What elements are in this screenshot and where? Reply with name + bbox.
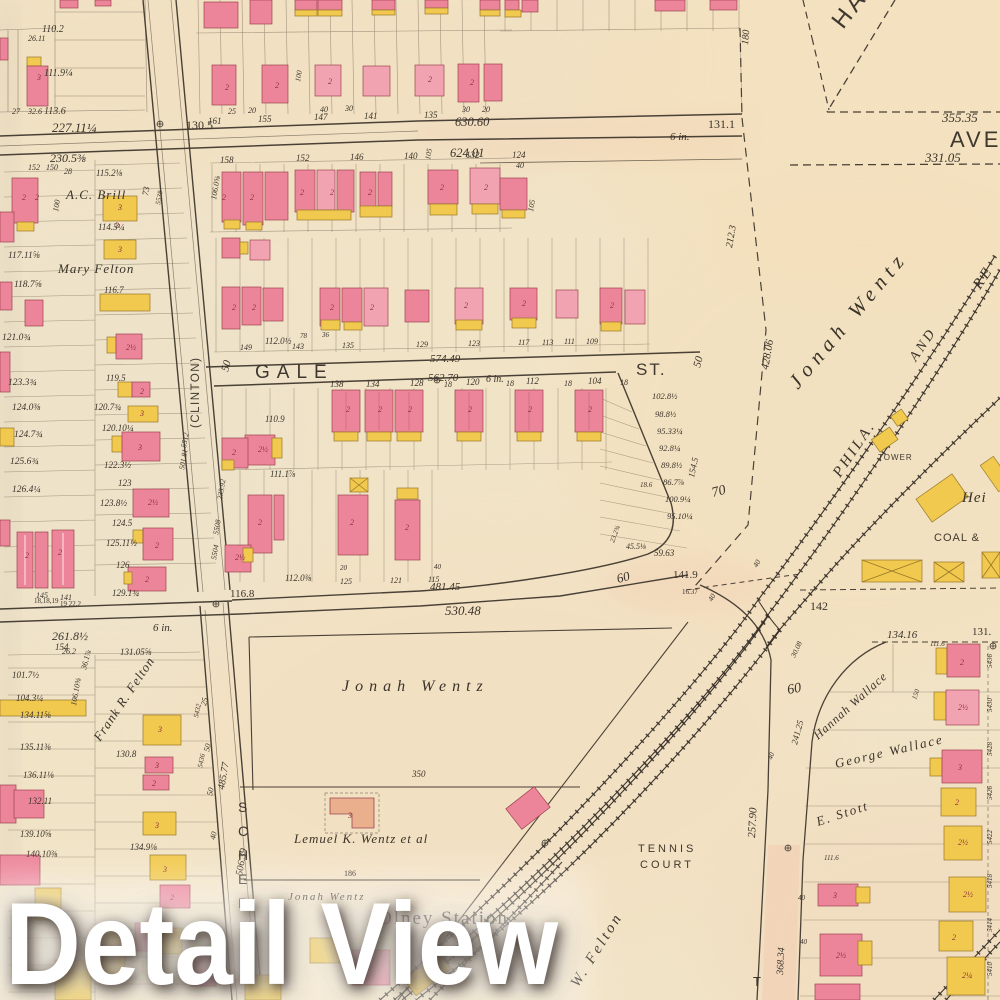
svg-text:123: 123: [118, 478, 132, 488]
svg-text:27: 27: [12, 107, 21, 116]
svg-text:5414: 5414: [986, 918, 994, 933]
svg-text:118.7⅝: 118.7⅝: [14, 280, 42, 290]
svg-text:101.7½: 101.7½: [12, 670, 39, 680]
svg-text:3: 3: [117, 245, 122, 254]
svg-text:18: 18: [564, 379, 572, 388]
svg-text:138: 138: [330, 379, 344, 389]
svg-text:3: 3: [154, 821, 159, 830]
svg-text:26.11: 26.11: [28, 34, 45, 43]
svg-text:2½: 2½: [958, 703, 968, 712]
svg-text:124.0⅜: 124.0⅜: [12, 403, 41, 413]
svg-text:(CLINTON): (CLINTON): [190, 357, 202, 428]
svg-text:T: T: [753, 974, 761, 989]
svg-text:125.11½: 125.11½: [106, 538, 137, 548]
svg-text:30: 30: [461, 105, 470, 114]
svg-text:3: 3: [154, 761, 159, 770]
svg-text:2: 2: [440, 183, 444, 192]
svg-text:16.37: 16.37: [682, 588, 698, 596]
svg-text:126: 126: [116, 560, 130, 570]
svg-text:40: 40: [800, 938, 808, 946]
svg-text:123.8½: 123.8½: [100, 498, 127, 508]
svg-text:2: 2: [155, 541, 159, 550]
svg-text:134.9⅛: 134.9⅛: [130, 842, 157, 852]
svg-text:18: 18: [506, 379, 514, 388]
svg-text:20: 20: [248, 106, 256, 115]
svg-text:59.63: 59.63: [654, 548, 675, 558]
svg-text:2: 2: [370, 303, 374, 312]
svg-text:120.10¼: 120.10¼: [102, 423, 134, 433]
svg-text:2: 2: [528, 405, 532, 414]
svg-text:2¼: 2¼: [962, 971, 972, 980]
svg-text:C: C: [238, 823, 248, 839]
svg-text:COAL &: COAL &: [934, 532, 980, 544]
svg-text:152: 152: [28, 163, 40, 172]
svg-text:149: 149: [240, 343, 252, 352]
svg-text:129: 129: [416, 340, 428, 349]
svg-text:123: 123: [468, 339, 480, 348]
svg-text:142: 142: [810, 599, 828, 613]
svg-text:2: 2: [275, 81, 279, 90]
svg-text:124.7¾: 124.7¾: [14, 429, 43, 440]
svg-text:S: S: [238, 799, 247, 815]
svg-text:141: 141: [60, 593, 72, 602]
svg-text:2½: 2½: [258, 445, 268, 454]
svg-text:3: 3: [114, 221, 119, 230]
svg-text:134: 134: [366, 379, 380, 389]
svg-text:2: 2: [952, 933, 956, 942]
svg-text:Detail View: Detail View: [5, 878, 559, 1000]
svg-text:5422: 5422: [986, 830, 994, 845]
svg-text:Hei: Hei: [961, 490, 987, 506]
svg-text:2: 2: [960, 658, 964, 667]
svg-text:2: 2: [428, 75, 432, 84]
svg-text:2½: 2½: [148, 498, 158, 507]
svg-text:2: 2: [232, 448, 236, 457]
svg-text:A.C. Brill: A.C. Brill: [65, 187, 126, 202]
svg-text:112.0½: 112.0½: [265, 336, 292, 346]
svg-text:60: 60: [786, 681, 802, 698]
svg-text:161: 161: [208, 116, 222, 126]
svg-text:2: 2: [484, 183, 488, 192]
svg-text:40: 40: [434, 563, 442, 571]
svg-text:18: 18: [444, 380, 452, 389]
svg-text:28: 28: [64, 167, 72, 176]
svg-text:89.8½: 89.8½: [661, 460, 683, 470]
svg-text:120.7¾: 120.7¾: [94, 402, 121, 412]
svg-text:2: 2: [25, 551, 29, 560]
svg-text:3: 3: [36, 73, 41, 82]
svg-text:Jonah Wentz: Jonah Wentz: [342, 678, 489, 695]
svg-text:3: 3: [832, 891, 837, 900]
svg-text:3: 3: [347, 811, 352, 820]
svg-text:45.5⅛: 45.5⅛: [626, 542, 646, 551]
svg-text:2: 2: [408, 405, 412, 414]
svg-text:355.35: 355.35: [941, 110, 978, 125]
svg-text:2: 2: [610, 301, 614, 310]
svg-text:2½: 2½: [836, 951, 846, 960]
svg-text:2: 2: [140, 387, 144, 396]
svg-text:141: 141: [364, 111, 378, 121]
svg-text:6 in.: 6 in.: [670, 131, 690, 143]
svg-text:2: 2: [522, 299, 526, 308]
svg-text:132: 132: [466, 150, 480, 160]
svg-text:6 in.: 6 in.: [486, 374, 504, 385]
svg-text:124: 124: [512, 150, 526, 160]
svg-text:2: 2: [222, 193, 226, 202]
svg-text:104.3¼: 104.3¼: [16, 693, 43, 703]
svg-text:Mary Felton: Mary Felton: [57, 261, 134, 276]
svg-text:2: 2: [152, 779, 156, 788]
svg-text:2: 2: [468, 405, 472, 414]
svg-text:TOWER: TOWER: [878, 453, 913, 462]
svg-text:2: 2: [330, 188, 334, 197]
svg-text:25: 25: [228, 107, 236, 116]
svg-text:2½: 2½: [235, 553, 245, 562]
svg-text:112.0⅜: 112.0⅜: [285, 573, 312, 583]
svg-text:86.7⅞: 86.7⅞: [663, 477, 684, 487]
svg-text:3: 3: [137, 443, 142, 452]
svg-text:2: 2: [350, 518, 354, 527]
svg-text:2: 2: [470, 78, 474, 87]
svg-text:5410: 5410: [986, 962, 994, 977]
svg-text:112: 112: [526, 376, 539, 386]
svg-text:78: 78: [300, 332, 308, 340]
svg-text:116.8: 116.8: [230, 588, 255, 600]
svg-text:180: 180: [740, 29, 752, 45]
svg-text:123.3¾: 123.3¾: [8, 377, 37, 388]
svg-text:135: 135: [424, 110, 438, 120]
svg-text:140: 140: [404, 151, 418, 161]
svg-text:26.2: 26.2: [62, 647, 76, 656]
svg-text:140.10⅜: 140.10⅜: [26, 849, 58, 859]
svg-text:5426: 5426: [986, 786, 994, 801]
svg-text:2: 2: [368, 188, 372, 197]
svg-text:125.6¾: 125.6¾: [10, 456, 39, 467]
svg-text:110.9: 110.9: [265, 414, 285, 424]
svg-text:95.10¼: 95.10¼: [667, 511, 693, 521]
svg-text:126.4¼: 126.4¼: [12, 484, 41, 495]
svg-text:113: 113: [542, 338, 553, 347]
svg-text:124.5: 124.5: [112, 518, 133, 528]
svg-text:102.8½: 102.8½: [652, 391, 678, 401]
svg-text:115.2⅛: 115.2⅛: [96, 168, 123, 178]
svg-text:130.8: 130.8: [116, 749, 137, 759]
svg-text:115: 115: [428, 575, 439, 584]
svg-text:2: 2: [346, 405, 350, 414]
svg-text:139.10⅝: 139.10⅝: [20, 829, 52, 839]
svg-text:2: 2: [252, 303, 256, 312]
svg-text:150: 150: [46, 163, 58, 172]
svg-text:120: 120: [466, 377, 480, 387]
svg-text:257.90: 257.90: [746, 807, 760, 838]
svg-text:3: 3: [157, 725, 162, 734]
svg-text:2: 2: [232, 303, 236, 312]
svg-text:2: 2: [955, 798, 959, 807]
svg-text:145: 145: [36, 591, 48, 600]
svg-text:100.9¼: 100.9¼: [665, 494, 691, 504]
svg-text:ST.: ST.: [636, 360, 667, 379]
svg-text:3: 3: [957, 763, 962, 772]
svg-text:5436: 5436: [986, 654, 994, 669]
svg-text:98.8½: 98.8½: [655, 409, 677, 419]
svg-text:2½: 2½: [958, 838, 968, 847]
svg-text:158: 158: [220, 155, 234, 165]
svg-text:2: 2: [405, 523, 409, 532]
svg-text:630.60: 630.60: [455, 115, 490, 129]
svg-text:574.49: 574.49: [430, 353, 461, 365]
svg-text:92.8¼: 92.8¼: [659, 443, 681, 453]
svg-text:121: 121: [390, 576, 402, 585]
svg-text:117: 117: [518, 338, 530, 347]
svg-text:119.5: 119.5: [106, 373, 126, 383]
svg-text:18.6: 18.6: [640, 481, 653, 489]
svg-text:121.0¾: 121.0¾: [2, 332, 31, 343]
svg-text:114.5¼: 114.5¼: [98, 222, 125, 232]
svg-text:131.: 131.: [972, 626, 992, 638]
svg-text:116.7: 116.7: [104, 285, 124, 295]
svg-text:2½: 2½: [963, 890, 973, 899]
svg-text:2: 2: [378, 405, 382, 414]
svg-text:227.11¼: 227.11¼: [52, 120, 97, 135]
svg-text:122.3½: 122.3½: [104, 460, 131, 470]
svg-text:5418: 5418: [986, 874, 994, 889]
svg-text:AVE: AVE: [950, 127, 1000, 152]
svg-text:18: 18: [620, 378, 628, 387]
svg-text:111.6: 111.6: [824, 854, 839, 862]
svg-text:2: 2: [330, 303, 334, 312]
svg-text:131.1: 131.1: [708, 117, 735, 131]
svg-text:2: 2: [464, 301, 468, 310]
svg-text:95.33¼: 95.33¼: [657, 426, 683, 436]
svg-text:152: 152: [296, 153, 310, 163]
svg-text:331.05: 331.05: [924, 150, 961, 165]
svg-text:125: 125: [340, 577, 352, 586]
svg-text:GALE: GALE: [255, 362, 334, 383]
svg-text:2: 2: [22, 193, 26, 202]
svg-text:155: 155: [258, 114, 272, 124]
svg-text:135.11⅜: 135.11⅜: [20, 742, 51, 752]
svg-text:135: 135: [342, 341, 354, 350]
svg-text:111.9¼: 111.9¼: [44, 68, 73, 79]
svg-text:2: 2: [250, 193, 254, 202]
svg-text:136.11⅛: 136.11⅛: [23, 770, 54, 780]
svg-text:128: 128: [410, 378, 424, 388]
svg-text:40: 40: [320, 105, 328, 114]
svg-text:2: 2: [258, 518, 262, 527]
svg-text:131.05⅝: 131.05⅝: [120, 647, 152, 657]
svg-text:350: 350: [411, 769, 426, 779]
svg-text:104: 104: [588, 376, 602, 386]
svg-text:3: 3: [117, 203, 122, 212]
svg-text:261.8½: 261.8½: [52, 629, 88, 643]
svg-text:368.34: 368.34: [775, 947, 787, 976]
svg-text:113.6: 113.6: [44, 106, 66, 117]
svg-text:143: 143: [292, 342, 304, 351]
svg-text:40: 40: [798, 894, 806, 902]
svg-text:2: 2: [225, 83, 229, 92]
svg-text:141.9: 141.9: [673, 569, 698, 581]
svg-text:2: 2: [58, 548, 62, 557]
svg-text:134.16: 134.16: [887, 629, 918, 641]
svg-text:109: 109: [586, 337, 598, 346]
svg-text:Lemuel K. Wentz et al: Lemuel K. Wentz et al: [293, 831, 428, 846]
svg-text:117.11⅝: 117.11⅝: [8, 251, 40, 261]
svg-text:32.6: 32.6: [27, 107, 42, 116]
svg-text:2: 2: [35, 193, 39, 202]
svg-text:TENNIS: TENNIS: [638, 843, 696, 855]
svg-text:132.11: 132.11: [28, 796, 52, 806]
svg-text:111: 111: [564, 337, 575, 346]
svg-text:40: 40: [516, 161, 524, 170]
svg-text:129.1¾: 129.1¾: [112, 588, 139, 598]
svg-text:2: 2: [145, 575, 149, 584]
svg-text:2: 2: [588, 405, 592, 414]
svg-text:2½: 2½: [126, 343, 136, 352]
svg-text:5428: 5428: [986, 742, 994, 757]
svg-text:111.1⅞: 111.1⅞: [270, 469, 296, 479]
svg-text:20: 20: [340, 564, 348, 572]
svg-text:COURT: COURT: [640, 859, 694, 871]
svg-text:2: 2: [328, 77, 332, 86]
svg-text:36: 36: [321, 331, 330, 339]
svg-text:5430: 5430: [986, 698, 994, 713]
svg-text:134.11⅝: 134.11⅝: [20, 710, 51, 720]
svg-text:111.6: 111.6: [930, 640, 945, 648]
svg-text:6 in.: 6 in.: [153, 622, 173, 634]
svg-text:146: 146: [350, 152, 364, 162]
svg-text:530.48: 530.48: [445, 603, 481, 618]
svg-text:30: 30: [344, 104, 353, 113]
svg-text:20: 20: [482, 105, 490, 114]
svg-text:2: 2: [300, 188, 304, 197]
svg-text:3: 3: [139, 409, 144, 418]
